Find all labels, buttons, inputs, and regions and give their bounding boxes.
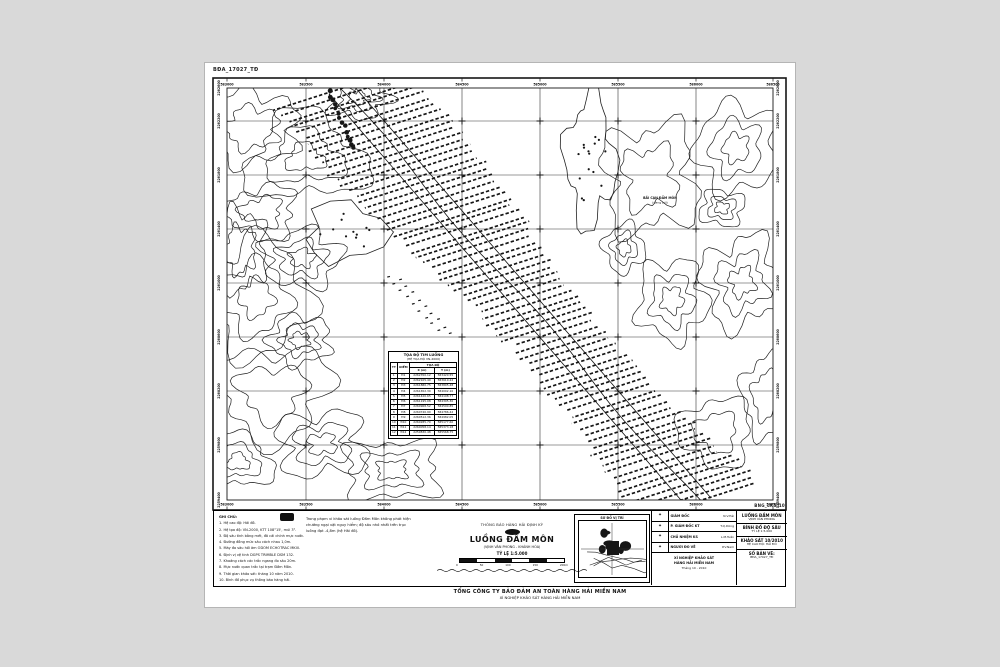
info-block: LUỒNG ĐẦM MÔNVỊNH VÂN PHONG — [737, 511, 787, 524]
svg-text:583500: 583500 — [299, 83, 313, 87]
issuing-authority: TỔNG CÔNG TY BẢO ĐẢM AN TOÀN HÀNG HẢI MI… — [350, 589, 730, 600]
svg-text:2261000: 2261000 — [776, 274, 780, 290]
dredged-channel-sounding-band — [273, 67, 755, 520]
svg-text:584500: 584500 — [455, 83, 469, 87]
info-block: SỐ BẢN VẼ:BĐA_17027_TĐ — [737, 550, 787, 562]
info-block: KHẢO SÁT 10/2010HỆ CAO ĐỘ: HẢI ĐỒ — [737, 537, 787, 550]
svg-text:586000: 586000 — [689, 502, 703, 506]
svg-text:2260600: 2260600 — [776, 328, 780, 344]
chart-subtitle: (VỊNH VÂN PHONG - KHÁNH HÒA) — [434, 545, 590, 549]
stamp-icon: ✦ — [652, 543, 669, 553]
coord-table-grid: TT ĐIỂM TỌA ĐỘ X (m) Y (m) 1Đ12262350.12… — [390, 362, 457, 436]
channel-coordinate-table: TỌA ĐỘ TIM LUỒNG (HỆ TỌA ĐỘ VN-2000) TT … — [388, 351, 459, 439]
drawing-info-column: LUỒNG ĐẦM MÔNVỊNH VÂN PHONGBÌNH ĐỒ ĐỘ SÂ… — [737, 511, 787, 585]
drawing-code-bottomright: BNG_LKS_10 — [735, 503, 785, 508]
svg-text:2259800: 2259800 — [776, 436, 780, 452]
svg-text:2262600: 2262600 — [776, 79, 780, 95]
svg-text:2261400: 2261400 — [776, 220, 780, 236]
signature-and-info-panel: ✦GIÁM ĐỐCN.V.Hải✦P. GIÁM ĐỐC KTT.Q.Dũng✦… — [651, 511, 787, 585]
svg-text:2262200: 2262200 — [217, 112, 221, 128]
coord-row: 12Đ122259830.48585568.75 — [391, 431, 457, 436]
decorative-wavy-rule — [437, 568, 587, 573]
svg-text:2262600: 2262600 — [217, 79, 221, 95]
scale-label: TỶ LỆ 1:5.000 — [434, 551, 590, 556]
svg-text:585500: 585500 — [611, 502, 625, 506]
location-inset-map: SƠ ĐỒ VỊ TRÍ — [574, 514, 650, 583]
info-block: BÌNH ĐỒ ĐỘ SÂUTỶ LỆ 1:5.000 — [737, 524, 787, 537]
svg-text:2261000: 2261000 — [217, 274, 221, 290]
svg-text:583500: 583500 — [299, 502, 313, 506]
svg-text:584000: 584000 — [377, 83, 391, 87]
surveying-unit: XÍ NGHIỆP KHẢO SÁT HÀNG HẢI MIỀN NAM Thá… — [652, 553, 736, 585]
drawing-code-topleft: BĐA_17027_TĐ — [213, 67, 258, 73]
chart-title: LUỒNG ĐẦM MÔN — [434, 536, 590, 545]
svg-text:585000: 585000 — [533, 502, 547, 506]
svg-text:583000: 583000 — [220, 502, 234, 506]
signature-column: ✦GIÁM ĐỐCN.V.Hải✦P. GIÁM ĐỐC KTT.Q.Dũng✦… — [652, 511, 737, 585]
svg-text:2259400: 2259400 — [217, 491, 221, 507]
scale-bar-ticks: 050100150200m — [456, 563, 568, 567]
notice-line: THÔNG BÁO HÀNG HẢI ĐỊNH KỲ — [434, 523, 590, 527]
stamp-icon: ✦ — [652, 511, 669, 521]
signature-row: ✦NGƯỜI ĐO VẼP.V.Nam — [652, 543, 736, 554]
authority-unit: XÍ NGHIỆP KHẢO SÁT HÀNG HẢI MIỀN NAM — [350, 595, 730, 600]
svg-text:2260600: 2260600 — [217, 328, 221, 344]
svg-text:584500: 584500 — [455, 502, 469, 506]
chart-title-group: THÔNG BÁO HÀNG HẢI ĐỊNH KỲ LUỒNG ĐẦM MÔN… — [434, 523, 590, 573]
inset-map-drawing — [578, 520, 647, 578]
coord-table-subtitle: (HỆ TỌA ĐỘ VN-2000) — [390, 358, 457, 362]
survey-date: Tháng 10 - 2010 — [652, 566, 736, 571]
svg-text:584000: 584000 — [377, 502, 391, 506]
svg-text:585000: 585000 — [533, 83, 547, 87]
svg-text:583000: 583000 — [220, 83, 234, 87]
svg-text:(đang bồi): (đang bồi) — [652, 201, 667, 205]
svg-text:BÃI CẠN ĐẦM MÔN: BÃI CẠN ĐẦM MÔN — [643, 195, 677, 200]
signature-row: ✦P. GIÁM ĐỐC KTT.Q.Dũng — [652, 522, 736, 533]
svg-text:586000: 586000 — [689, 83, 703, 87]
coord-col-tt: TT — [391, 363, 398, 373]
svg-text:2261800: 2261800 — [776, 166, 780, 182]
svg-text:2261400: 2261400 — [217, 220, 221, 236]
coord-col-point: ĐIỂM — [397, 363, 409, 373]
depth-contour-lines — [193, 73, 796, 502]
svg-text:585500: 585500 — [611, 83, 625, 87]
anchor-seal-icon — [505, 529, 520, 535]
signature-row: ✦CHỦ NHIỆM KSL.M.Tuấn — [652, 532, 736, 543]
note-item: 10. Bình đồ phục vụ thông báo hàng hải. — [219, 577, 334, 583]
stamp-icon: ✦ — [652, 522, 669, 532]
svg-text:2261800: 2261800 — [217, 166, 221, 182]
signature-row: ✦GIÁM ĐỐCN.V.Hải — [652, 511, 736, 522]
svg-text:2262200: 2262200 — [776, 112, 780, 128]
stamp-icon: ✦ — [652, 532, 669, 542]
title-block: GHI CHÚ: 1. Hệ cao độ: Hải đồ.2. Hệ tọa … — [213, 510, 786, 587]
shoal-and-sounding-features: BÃI CẠN ĐẦM MÔN(đang bồi) — [306, 77, 677, 334]
svg-text:2260200: 2260200 — [776, 382, 780, 398]
svg-text:2259800: 2259800 — [217, 436, 221, 452]
company-seal-icon — [280, 513, 294, 521]
svg-text:2260200: 2260200 — [217, 382, 221, 398]
